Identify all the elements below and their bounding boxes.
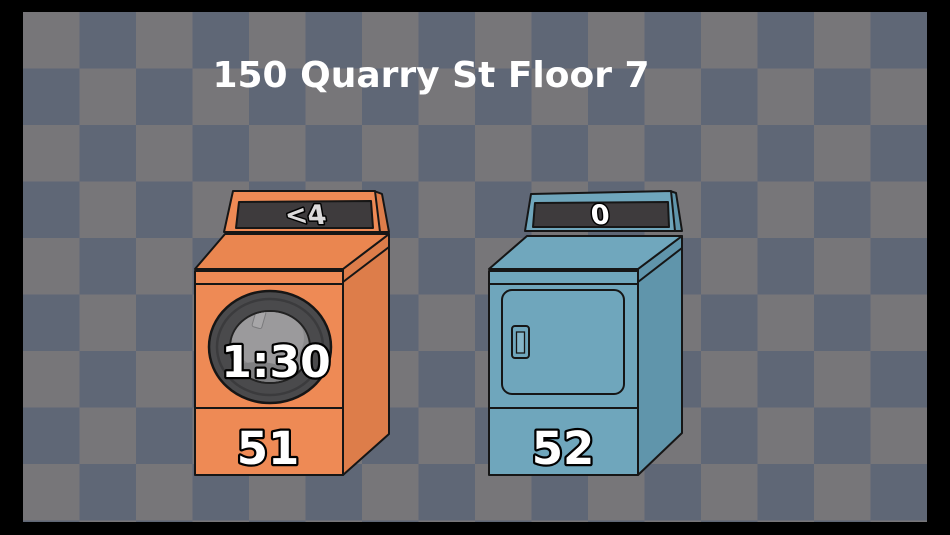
laundry-room-view: 150 Quarry St Floor 7 <4 1:30 51 [0,0,950,535]
washer-front-lip [195,271,343,284]
dryer-side-face [638,236,682,475]
dryer-door-handle-inset [517,332,525,353]
dryer-queue-count: 0 [590,200,611,231]
washer-51[interactable]: <4 1:30 51 [195,191,389,475]
washer-number-label: 51 [237,422,300,475]
washer-queue-count: <4 [282,200,329,231]
washer-door-icon: 1:30 [209,291,331,403]
dryer-front-lip [489,271,638,284]
room-title: 150 Quarry St Floor 7 [212,55,649,96]
dryer-number-label: 52 [532,422,595,475]
washer-side-face [343,234,389,475]
washer-time-remaining: 1:30 [221,337,330,388]
